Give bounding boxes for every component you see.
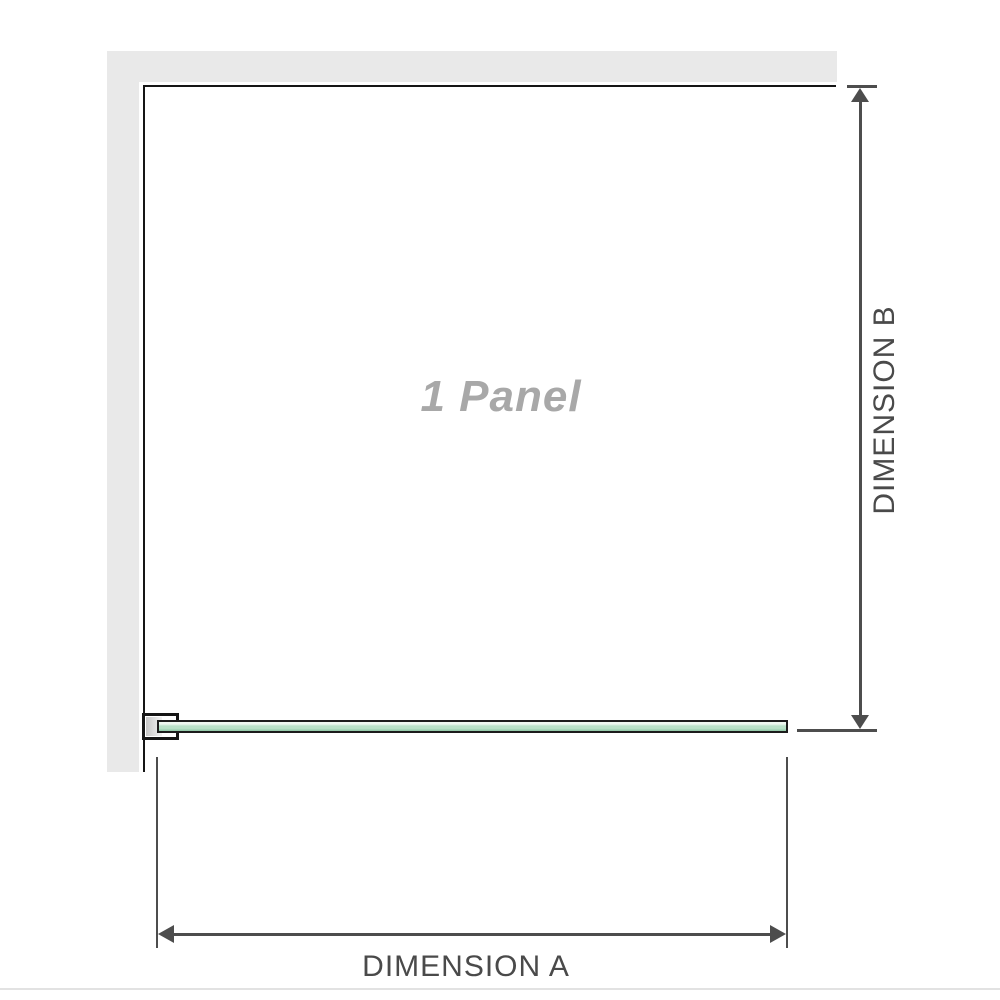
bottom-separator-line: [0, 988, 1000, 990]
glass-panel-bar: [157, 720, 788, 733]
dim-a-label: DIMENSION A: [362, 950, 570, 984]
dim-a-extension-left: [156, 757, 158, 948]
arrow-right-icon: [770, 925, 786, 943]
dim-b-label: DIMENSION B: [868, 305, 902, 514]
dim-b-bottom-cap: [797, 729, 877, 732]
dim-a-extension-right: [786, 757, 788, 948]
arrow-left-icon: [158, 925, 174, 943]
panel-count-label: 1 Panel: [420, 372, 581, 422]
panel-dimension-diagram: 1 Panel DIMENSION B DIMENSION A: [0, 0, 1000, 1000]
arrow-up-icon: [851, 88, 869, 102]
wall-top-band: [107, 51, 837, 82]
dim-b-line: [859, 99, 862, 717]
panel-outline-top: [143, 85, 836, 87]
wall-left-band: [107, 51, 139, 772]
panel-outline-left: [143, 85, 145, 772]
dim-a-line: [170, 933, 774, 936]
arrow-down-icon: [851, 715, 869, 729]
